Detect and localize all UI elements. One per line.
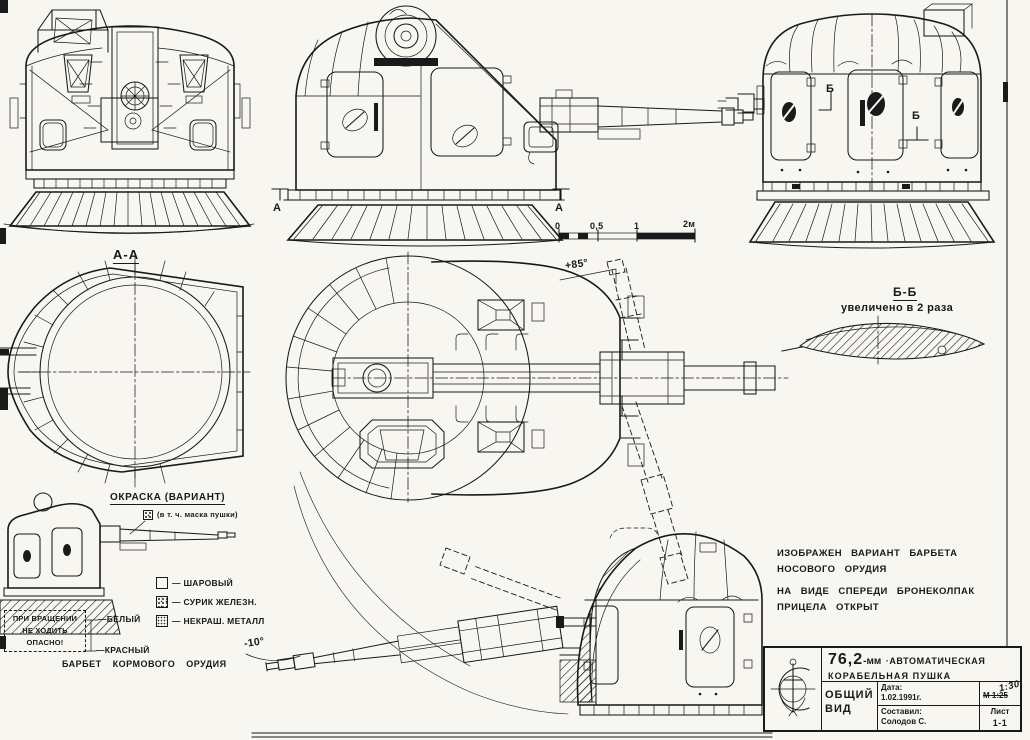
title-block-main: 76,2-мм ·АВТОМАТИЧЕСКАЯ КОРАБЕЛЬНАЯ ПУШК… (822, 648, 1020, 730)
note-barbette-variant: ИЗОБРАЖЕН ВАРИАНТ БАРБЕТА НОСОВОГО ОРУДИ… (777, 546, 1019, 578)
warning-line-3: ОПАСНО! (5, 637, 85, 649)
section-bb-note: увеличено в 2 раза (841, 302, 953, 314)
section-aa-title: А-А (113, 248, 139, 264)
author-cell: Составил: Солодов С. (878, 706, 980, 730)
scale-bar (559, 229, 695, 242)
depressed-view-drawing (246, 472, 772, 737)
anchor-logo-icon (769, 652, 817, 726)
stern-barbette-caption: БАРБЕТ КОРМОВОГО ОРУДИЯ (62, 660, 227, 670)
title-block-logo-cell (765, 648, 822, 730)
white-label: —БЕЛЫЙ (98, 615, 140, 624)
author-label: Составил: (881, 707, 922, 716)
date-value: 1.02.1991г. (881, 693, 921, 702)
legend-label-surik: — СУРИК ЖЕЛЕЗН. (172, 598, 257, 607)
legend-swatch-surik (156, 596, 168, 608)
author-value: Солодов С. (881, 717, 926, 726)
scale-cell: 1:30 М 1:25 (980, 682, 1020, 706)
gun-name-line1: ·АВТОМАТИЧЕСКАЯ (886, 656, 986, 666)
scale-tick-0: 0 (555, 222, 560, 232)
note-sight-open: НА ВИДЕ СПЕРЕДИ БРОНЕКОЛПАК ПРИЦЕЛА ОТКР… (777, 584, 1019, 616)
mask-note-swatch (143, 510, 153, 520)
title-block: 76,2-мм ·АВТОМАТИЧЕСКАЯ КОРАБЕЛЬНАЯ ПУШК… (763, 646, 1022, 732)
legend-swatch-sharovy (156, 577, 168, 589)
rotation-warning-box: ПРИ ВРАЩЕНИИ НЕ ХОДИТЬ ОПАСНО! (4, 610, 86, 652)
paint-title: ОКРАСКА (ВАРИАНТ) (110, 492, 225, 505)
caliber-value: 76,2 (828, 651, 863, 668)
legend-label-sharovy: — ШАРОВЫЙ (172, 579, 233, 588)
scale-tick-05: 0,5 (590, 222, 603, 232)
sheet-cell: Лист 1-1 (980, 706, 1020, 730)
plan-view-drawing (286, 252, 788, 584)
front-view-drawing (4, 10, 254, 234)
sheet-label: Лист (991, 707, 1010, 716)
date-cell: Дата: 1.02.1991г. (878, 682, 980, 706)
gun-name-line2: КОРАБЕЛЬНАЯ ПУШКА (828, 671, 1020, 681)
legend-label-metal: — НЕКРАШ. МЕТАЛЛ (172, 617, 265, 626)
blueprint-sheet: { "sheet": { "paper": "#f7f6f1", "ink": … (0, 0, 1030, 740)
mask-note: (в т. ч. маска пушки) (157, 511, 238, 519)
rear-view-drawing (718, 4, 994, 248)
gun-designation: 76,2-мм ·АВТОМАТИЧЕСКАЯ КОРАБЕЛЬНАЯ ПУШК… (822, 648, 1020, 682)
sheet-number: 1-1 (983, 718, 1017, 729)
red-label: —КРАСНЫЙ (96, 646, 150, 655)
section-a-marker-left: А (273, 202, 281, 214)
line-art (0, 0, 1030, 740)
date-label: Дата: (881, 683, 902, 692)
scale-tick-1: 1 (634, 222, 639, 232)
section-bb-title: Б-Б (893, 286, 917, 301)
scale-tick-2m: 2м (683, 220, 695, 230)
side-view-drawing (272, 6, 753, 246)
view-type-cell: ОБЩИЙ ВИД (822, 682, 878, 731)
caliber-unit: -мм (863, 656, 881, 667)
scale-handwritten: 1:30 (998, 679, 1021, 696)
section-bb-drawing (782, 316, 984, 364)
legend-swatch-metal (156, 615, 168, 627)
warning-line-2: НЕ ХОДИТЬ (5, 625, 85, 637)
warning-line-1: ПРИ ВРАЩЕНИИ (5, 613, 85, 625)
section-b-marker-right: Б (912, 110, 920, 122)
section-a-marker-right: А (555, 202, 563, 214)
section-b-marker-left: Б (826, 83, 834, 95)
section-aa-drawing (0, 257, 250, 487)
title-block-grid: Дата: 1.02.1991г. ОБЩИЙ ВИД 1:30 М 1:25 … (822, 682, 1020, 731)
